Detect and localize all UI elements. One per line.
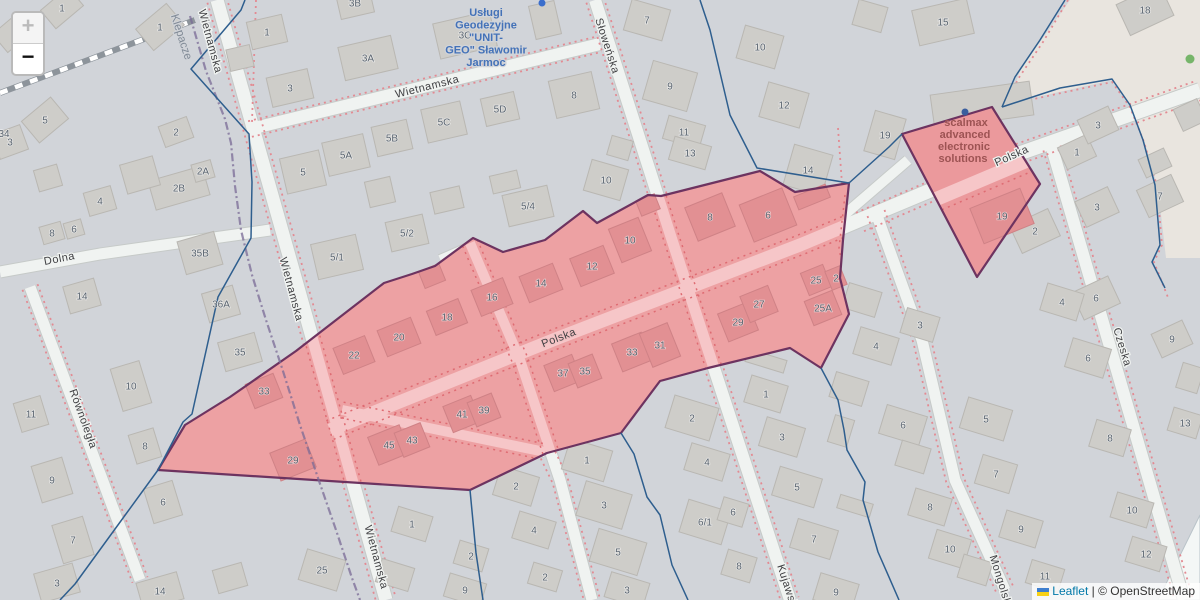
svg-text:31: 31: [654, 341, 666, 352]
svg-text:6: 6: [900, 421, 906, 432]
svg-text:6: 6: [1093, 294, 1099, 305]
svg-text:11: 11: [1040, 572, 1051, 583]
svg-text:16: 16: [486, 293, 498, 304]
svg-text:4: 4: [97, 197, 103, 208]
svg-text:7: 7: [644, 16, 650, 27]
svg-text:9: 9: [1018, 525, 1024, 536]
svg-text:18: 18: [1139, 6, 1151, 17]
svg-text:"UNIT-: "UNIT-: [469, 32, 503, 44]
svg-text:11: 11: [679, 128, 690, 139]
svg-text:solutions: solutions: [939, 153, 988, 165]
svg-text:Jarmoc: Jarmoc: [466, 57, 505, 69]
svg-text:6: 6: [160, 498, 166, 509]
svg-text:11: 11: [26, 410, 37, 421]
svg-text:25: 25: [316, 566, 328, 577]
svg-text:2B: 2B: [173, 184, 186, 195]
svg-text:9: 9: [462, 586, 468, 597]
svg-text:41: 41: [456, 410, 468, 421]
svg-text:35B: 35B: [191, 249, 209, 260]
svg-text:8: 8: [707, 213, 713, 224]
svg-text:5/4: 5/4: [521, 202, 535, 213]
svg-text:5: 5: [983, 415, 989, 426]
svg-text:36A: 36A: [212, 300, 230, 311]
svg-text:2: 2: [689, 414, 695, 425]
svg-text:18: 18: [441, 313, 453, 324]
svg-text:5D: 5D: [494, 105, 507, 116]
svg-text:5B: 5B: [386, 134, 399, 145]
svg-text:1: 1: [157, 23, 163, 34]
svg-text:5: 5: [42, 116, 48, 127]
svg-text:29: 29: [287, 456, 299, 467]
svg-text:33: 33: [626, 348, 638, 359]
svg-text:45: 45: [383, 441, 395, 452]
svg-text:13: 13: [684, 149, 696, 160]
svg-text:39: 39: [478, 406, 490, 417]
svg-text:5C: 5C: [438, 118, 451, 129]
svg-text:5/1: 5/1: [330, 253, 344, 264]
svg-text:10: 10: [624, 236, 636, 247]
svg-text:35: 35: [579, 367, 591, 378]
svg-text:8: 8: [736, 562, 742, 573]
svg-text:10: 10: [754, 43, 766, 54]
svg-text:3: 3: [1095, 121, 1101, 132]
svg-text:12: 12: [586, 262, 598, 273]
svg-text:6: 6: [730, 508, 736, 519]
svg-text:7: 7: [70, 536, 76, 547]
svg-text:25A: 25A: [814, 304, 832, 315]
svg-text:37: 37: [557, 369, 569, 380]
svg-text:3: 3: [624, 586, 630, 597]
svg-text:29: 29: [732, 318, 744, 329]
svg-text:20: 20: [393, 333, 405, 344]
svg-text:4: 4: [1059, 298, 1065, 309]
svg-text:2: 2: [833, 274, 839, 285]
svg-text:14: 14: [802, 166, 814, 177]
svg-text:5A: 5A: [340, 151, 353, 162]
svg-text:19: 19: [996, 212, 1008, 223]
svg-text:2: 2: [513, 482, 519, 493]
svg-text:3: 3: [287, 84, 293, 95]
svg-text:22: 22: [348, 351, 360, 362]
svg-text:2: 2: [468, 552, 474, 563]
svg-text:5: 5: [794, 483, 800, 494]
svg-text:35: 35: [234, 348, 246, 359]
svg-text:12: 12: [778, 101, 790, 112]
svg-text:4: 4: [873, 342, 879, 353]
svg-text:scalmax: scalmax: [944, 117, 988, 129]
svg-text:3: 3: [779, 433, 785, 444]
svg-text:8: 8: [571, 91, 577, 102]
svg-text:6/1: 6/1: [698, 518, 712, 529]
svg-text:5: 5: [615, 548, 621, 559]
svg-text:25: 25: [810, 276, 822, 287]
svg-text:8: 8: [1107, 434, 1113, 445]
svg-text:3: 3: [54, 579, 60, 590]
svg-text:10: 10: [1126, 506, 1138, 517]
svg-text:8: 8: [142, 442, 148, 453]
svg-text:3B: 3B: [349, 0, 362, 10]
svg-text:4: 4: [704, 458, 710, 469]
svg-text:10: 10: [944, 545, 956, 556]
svg-text:9: 9: [667, 82, 673, 93]
svg-text:GEO" Sławomir: GEO" Sławomir: [445, 45, 527, 57]
svg-text:2A: 2A: [197, 167, 210, 178]
svg-text:14: 14: [76, 292, 88, 303]
svg-text:8: 8: [927, 503, 933, 514]
svg-text:33: 33: [258, 387, 270, 398]
svg-text:5/2: 5/2: [400, 229, 414, 240]
svg-text:3: 3: [1094, 203, 1100, 214]
svg-text:advanced: advanced: [940, 129, 991, 141]
svg-text:2: 2: [542, 573, 548, 584]
svg-text:43: 43: [406, 436, 418, 447]
svg-text:9: 9: [833, 588, 839, 599]
svg-text:5: 5: [300, 168, 306, 179]
svg-text:3: 3: [917, 321, 923, 332]
svg-text:10: 10: [125, 382, 137, 393]
svg-text:Geodezyjne: Geodezyjne: [455, 20, 517, 32]
svg-text:3A: 3A: [362, 54, 375, 65]
svg-text:Usługi: Usługi: [469, 7, 503, 19]
svg-text:14: 14: [535, 279, 547, 290]
svg-text:1: 1: [763, 390, 769, 401]
svg-text:4: 4: [531, 526, 537, 537]
svg-text:6: 6: [71, 225, 77, 236]
svg-text:6: 6: [765, 211, 771, 222]
svg-text:27: 27: [753, 300, 765, 311]
svg-text:14: 14: [154, 587, 166, 598]
svg-text:7: 7: [811, 535, 817, 546]
svg-text:electronic: electronic: [938, 141, 990, 153]
svg-text:1: 1: [59, 4, 65, 15]
svg-text:2: 2: [173, 128, 179, 139]
svg-text:1: 1: [1074, 148, 1080, 159]
svg-text:34: 34: [0, 129, 10, 140]
svg-text:1: 1: [264, 28, 270, 39]
svg-text:3: 3: [601, 501, 607, 512]
svg-text:7: 7: [993, 470, 999, 481]
svg-text:9: 9: [49, 476, 55, 487]
svg-text:2: 2: [1032, 227, 1038, 238]
svg-text:6: 6: [1085, 354, 1091, 365]
svg-text:8: 8: [49, 229, 55, 240]
svg-text:13: 13: [1179, 419, 1191, 430]
svg-text:12: 12: [1140, 550, 1152, 561]
svg-text:10: 10: [600, 176, 612, 187]
svg-text:1: 1: [409, 520, 415, 531]
svg-text:7: 7: [1157, 192, 1163, 203]
svg-text:15: 15: [937, 18, 949, 29]
svg-text:9: 9: [1169, 335, 1175, 346]
svg-text:1: 1: [584, 456, 590, 467]
svg-text:19: 19: [879, 131, 891, 142]
